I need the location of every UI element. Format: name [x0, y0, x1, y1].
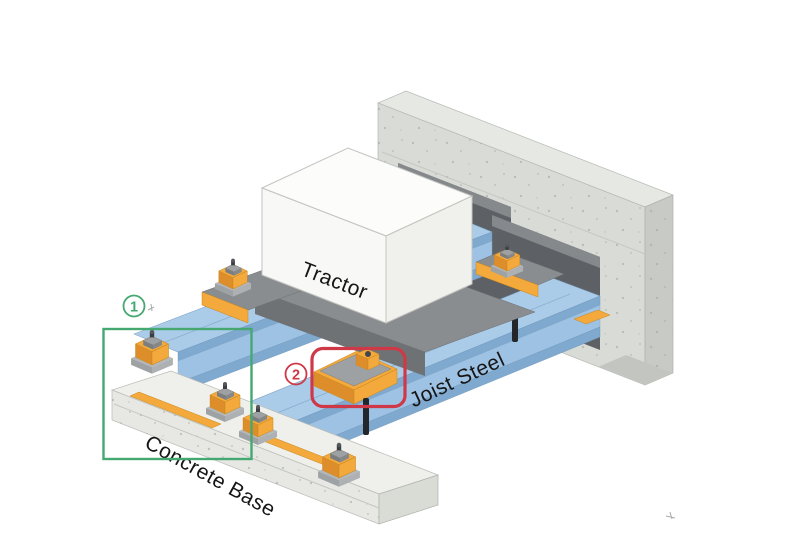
stray-mark-1 — [148, 304, 154, 311]
isolation-mounting-diagram: Tractor Joist Steel Concrete Base 1 2 — [0, 0, 800, 557]
callout-1-number: 1 — [130, 300, 138, 316]
anchor-rod-center — [363, 398, 369, 435]
pad-bolt-head — [365, 351, 371, 357]
stray-mark-2 — [666, 512, 675, 519]
callout-2-number: 2 — [292, 368, 300, 384]
diagram-canvas: Tractor Joist Steel Concrete Base 1 2 — [0, 0, 800, 557]
isolator-mount-platform-left — [215, 259, 251, 297]
wall-right-texture — [645, 195, 673, 385]
